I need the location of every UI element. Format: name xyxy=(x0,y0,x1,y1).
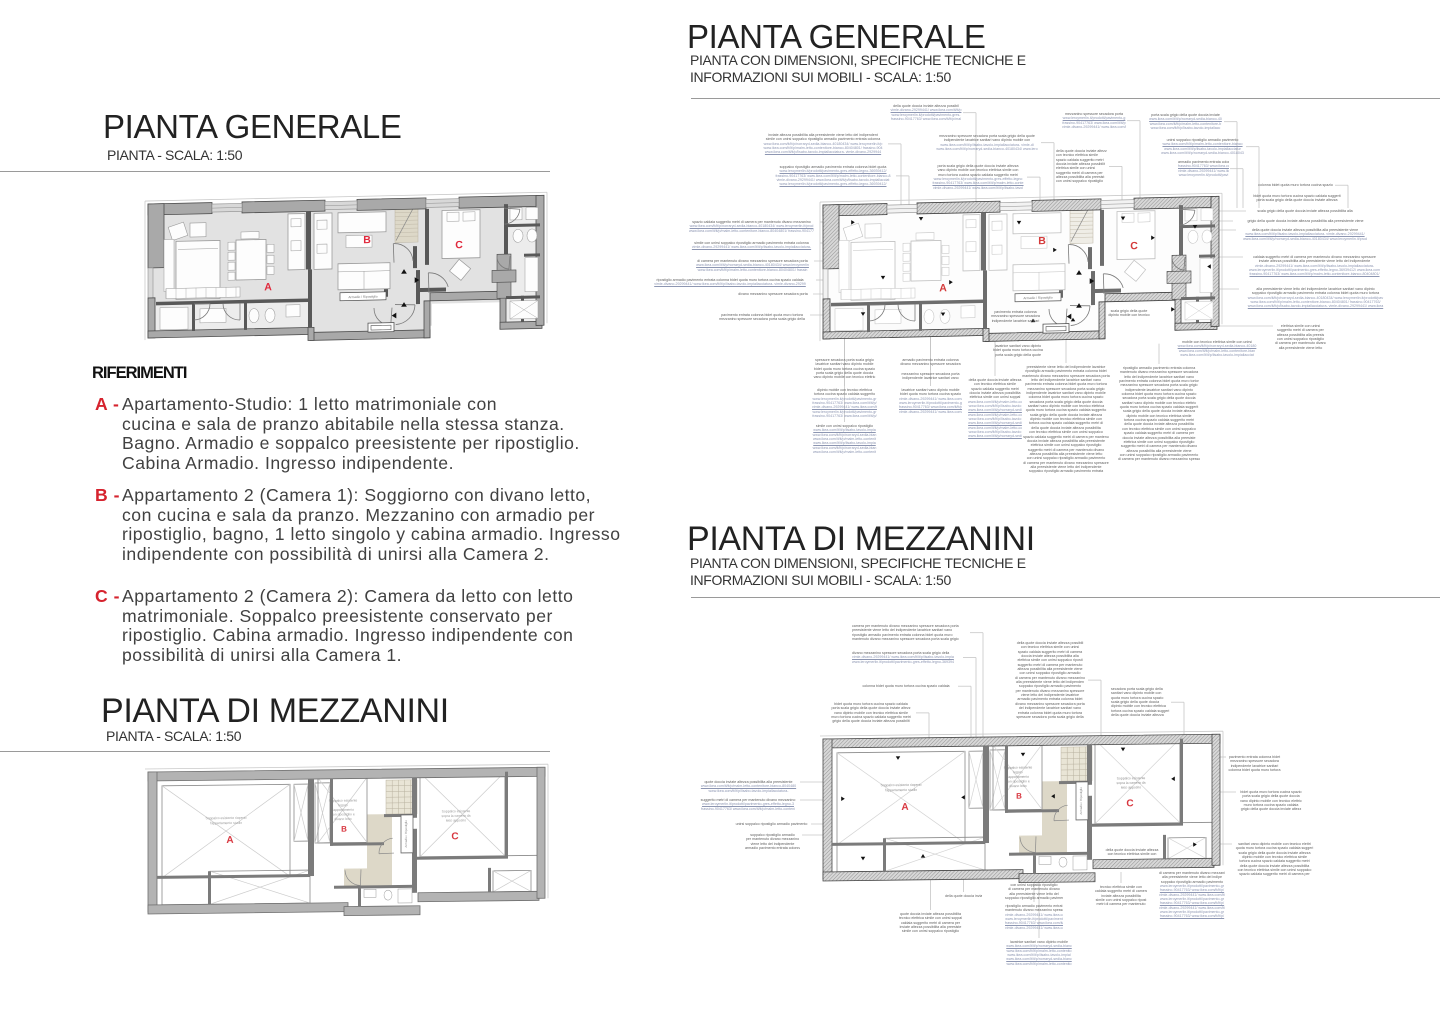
svg-text:l'appartamento studio: l'appartamento studio xyxy=(885,788,917,792)
svg-text:l'appartamento: l'appartamento xyxy=(1007,775,1029,779)
svg-text:A: A xyxy=(901,802,908,813)
svg-text:divano letto: divano letto xyxy=(1009,784,1026,788)
svg-text:con ripostiglio e: con ripostiglio e xyxy=(1006,779,1030,783)
svg-text:letto apposito: letto apposito xyxy=(1121,785,1141,789)
svg-text:sopra la camera da: sopra la camera da xyxy=(1116,781,1145,785)
svg-text:C: C xyxy=(1126,798,1133,809)
svg-text:B: B xyxy=(1016,792,1022,801)
svg-text:legato: legato xyxy=(1013,770,1022,774)
svg-text:Soppalco esistente riaperto: Soppalco esistente riaperto xyxy=(880,783,921,787)
svg-text:Armadio / Ripostiglio: Armadio / Ripostiglio xyxy=(1079,787,1083,815)
